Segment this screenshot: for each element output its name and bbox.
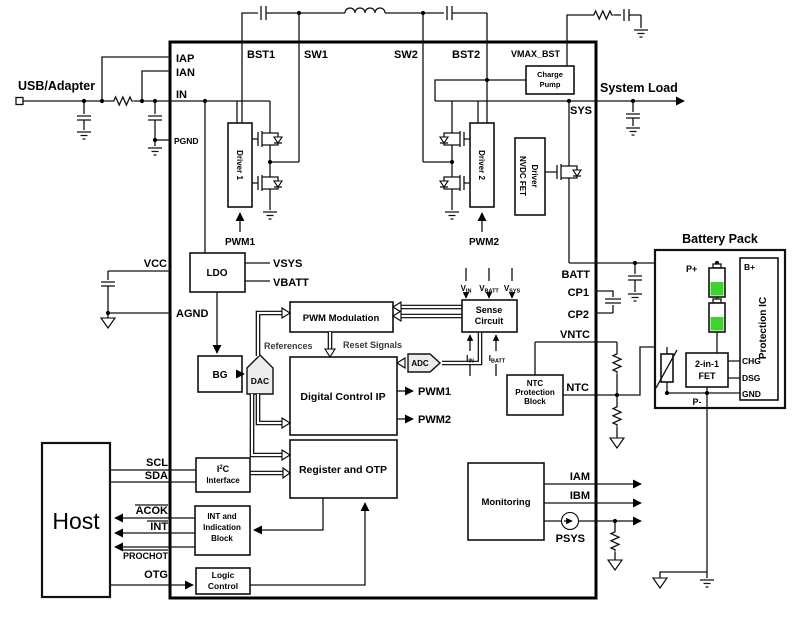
battery-cell-icon (709, 264, 725, 297)
resistor (613, 405, 621, 427)
block-diagram: Driver 1 PWM1 Driver 2 PWM2 Charge Pu (0, 0, 800, 618)
iap-pin-label: IAP (176, 53, 194, 65)
protection-ic-label: Protection IC (758, 297, 769, 359)
reset-signals-label: Reset Signals (343, 340, 402, 350)
sense-label2: Circuit (475, 316, 504, 326)
ground-icon (653, 578, 667, 588)
charge-pump-label2: Pump (540, 80, 561, 89)
pwm1-driver-label: PWM1 (225, 237, 255, 248)
vcc-pin-label: VCC (144, 258, 167, 270)
bst1-pin-label: BST1 (247, 49, 275, 61)
digital-core: PWM Modulation Digital Control IP Regist… (250, 302, 480, 498)
int-label: INT (150, 521, 168, 533)
agnd-pin-label: AGND (176, 308, 208, 320)
sense-label1: Sense (476, 305, 503, 315)
ground-icon (148, 148, 162, 155)
ibm-label: IBM (570, 490, 590, 502)
input-sense-resistor (112, 97, 134, 105)
pwm1-output-label: PWM1 (418, 386, 451, 398)
fet-q4 (440, 162, 470, 210)
ground-icon (263, 212, 277, 219)
ground-icon (626, 128, 640, 135)
register-otp-label: Register and OTP (299, 464, 387, 476)
bst2-pin-label: BST2 (452, 49, 480, 61)
sda-label: SDA (145, 470, 168, 482)
int-block-label2: Indication (203, 523, 241, 532)
adc-label: ADC (411, 359, 429, 368)
vmax-bst-external-rc (567, 9, 648, 42)
ibatt-label: IBATT (489, 354, 506, 365)
iin-label: IIN (466, 354, 474, 365)
logic-control-label1: Logic (212, 570, 235, 580)
sys-pin-label: SYS (570, 105, 592, 117)
ground-icon (608, 560, 622, 570)
vsys-label: VSYS (273, 258, 302, 270)
ntc-block-label3: Block (524, 397, 546, 406)
resistor (611, 530, 619, 552)
usb-adapter-label: USB/Adapter (18, 79, 95, 93)
logic-control-label2: Control (208, 581, 238, 591)
gnd-label: GND (742, 389, 761, 399)
b-plus-label: B+ (744, 262, 755, 272)
host-label: Host (52, 508, 100, 534)
digital-control-ip-label: Digital Control IP (300, 391, 385, 403)
psys-label: PSYS (556, 533, 585, 545)
in-pin-label: IN (176, 89, 187, 101)
iam-label: IAM (570, 471, 590, 483)
driver2-label: Driver 2 (477, 150, 486, 180)
ground-icon (445, 212, 459, 219)
input-terminal (16, 98, 23, 105)
battery-pack-title: Battery Pack (682, 232, 758, 246)
power-stage: Driver 1 PWM1 Driver 2 PWM2 (225, 42, 499, 248)
fet-q2 (252, 162, 282, 210)
resistor (613, 352, 621, 374)
otg-label: OTG (144, 569, 168, 581)
vmax-bst-pin-label: VMAX_BST (511, 49, 561, 59)
vin-label: VIN (461, 284, 472, 295)
ntc-block-label2: Protection (515, 388, 555, 397)
battery-cell-icon (709, 299, 725, 332)
batt-pin-label: BATT (561, 269, 590, 281)
driver1-label: Driver 1 (235, 150, 244, 180)
cp2-pin-label: CP2 (568, 309, 589, 321)
chg-label: CHG (742, 356, 761, 366)
nvdc-driver-label2: Driver (530, 164, 539, 187)
i2c-label: I2C (217, 464, 230, 474)
sw1-pin-label: SW1 (304, 49, 328, 61)
nvdc-driver-label1: NVDC FET (518, 156, 527, 196)
fet-2in1-label2: FET (699, 371, 717, 381)
fet-nvdc (545, 101, 581, 263)
agnd-ground-icon (101, 318, 115, 328)
battery-pack: Battery Pack P+ 2-in-1 FET P- (653, 232, 785, 588)
ground-icon (700, 580, 714, 587)
ntc-block-label1: NTC (527, 379, 544, 388)
ground-icon (628, 294, 642, 301)
prochot-label: PROCHOT (123, 551, 169, 561)
p-plus-label: P+ (686, 264, 697, 274)
resistor (592, 11, 614, 19)
fet-q3 (440, 125, 470, 162)
cp1-pin-label: CP1 (568, 287, 589, 299)
vsys-sense-label: VSYS (504, 284, 521, 295)
scl-label: SCL (146, 457, 168, 469)
i2c-label2: Interface (206, 476, 240, 485)
acok-label: ACOK (136, 505, 168, 517)
charge-pump-label: Charge (537, 70, 563, 79)
monitoring-label: Monitoring (481, 497, 530, 508)
references-label: References (264, 341, 313, 351)
charger-ic-block-diagram: Driver 1 PWM1 Driver 2 PWM2 Charge Pu (0, 0, 800, 618)
inductor (345, 8, 385, 13)
system-load-label: System Load (600, 81, 678, 95)
sw2-pin-label: SW2 (394, 49, 418, 61)
p-minus-label: P- (693, 397, 702, 407)
fet-q1 (252, 125, 282, 162)
bg-label: BG (213, 370, 228, 381)
pwm2-driver-label: PWM2 (469, 237, 499, 248)
vbatt-sense-label: VBATT (479, 284, 499, 295)
ldo-label: LDO (206, 268, 227, 279)
vntc-pin-label: VNTC (560, 329, 590, 341)
sense-circuit: Sense Circuit VIN VBATT VSYS IIN IBATT (461, 268, 521, 376)
pwm2-output-label: PWM2 (418, 414, 451, 426)
ground-icon (634, 30, 648, 37)
int-block-label3: Block (211, 534, 233, 543)
monitoring-section: Monitoring IAM IBM PSYS (468, 463, 641, 570)
dac-shape (247, 355, 273, 394)
fet-2in1-label1: 2-in-1 (695, 359, 719, 369)
vbatt-label: VBATT (273, 277, 309, 289)
dac-label: DAC (251, 376, 269, 386)
ground-icon (610, 438, 624, 448)
ground-icon (77, 132, 91, 139)
ian-pin-label: IAN (176, 67, 195, 79)
dsg-label: DSG (742, 373, 761, 383)
pwm-modulation-label: PWM Modulation (303, 313, 380, 324)
int-block-label1: INT and (207, 512, 236, 521)
pgnd-pin-label: PGND (174, 136, 199, 146)
ntc-pin-label: NTC (566, 382, 589, 394)
